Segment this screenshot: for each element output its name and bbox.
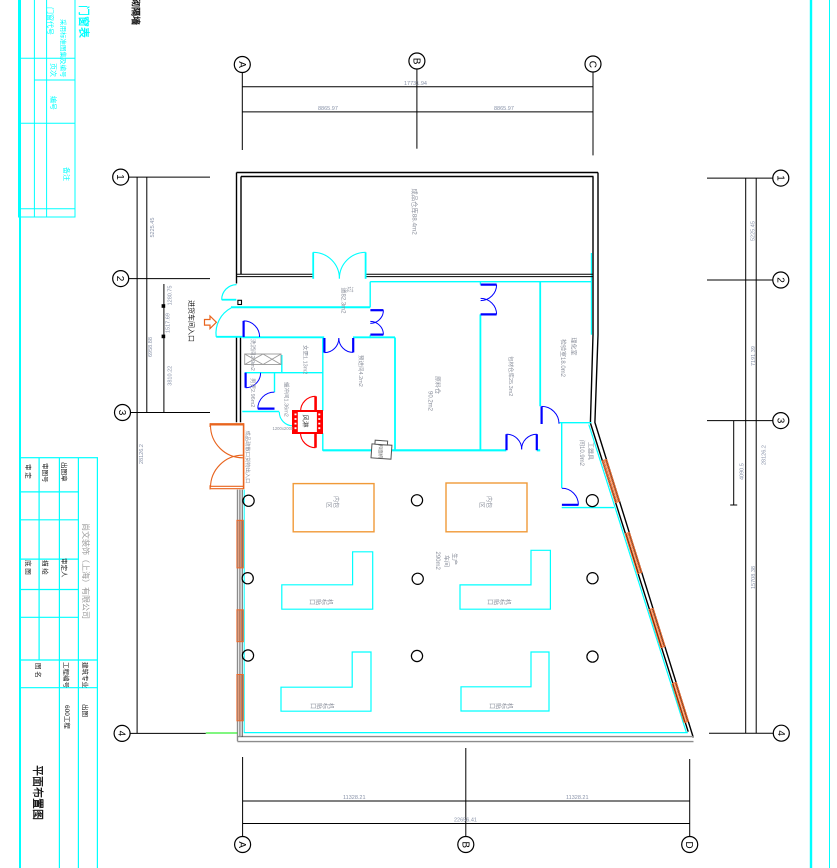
- svg-text:28126.2: 28126.2: [139, 444, 145, 464]
- svg-text:口贴标机: 口贴标机: [309, 703, 335, 709]
- svg-text:3: 3: [116, 410, 127, 416]
- svg-text:成品仓库88.4m2: 成品仓库88.4m2: [411, 189, 420, 236]
- svg-text:缓冲间1.36m2: 缓冲间1.36m2: [283, 382, 291, 417]
- svg-text:女更1.13m2: 女更1.13m2: [302, 345, 310, 374]
- svg-text:出图章: 出图章: [60, 462, 69, 482]
- svg-text:4090.5: 4090.5: [740, 463, 746, 480]
- svg-text:区: 区: [478, 502, 485, 508]
- svg-text:原料仓: 原料仓: [434, 376, 442, 394]
- svg-text:审图号: 审图号: [41, 463, 50, 483]
- svg-text:290m2: 290m2: [434, 552, 440, 571]
- svg-text:11328.21: 11328.21: [343, 795, 366, 801]
- svg-text:备注: 备注: [62, 167, 71, 181]
- svg-text:A: A: [236, 841, 247, 848]
- svg-text:理化室: 理化室: [570, 338, 578, 356]
- svg-text:2: 2: [774, 277, 785, 283]
- svg-text:门窗表: 门窗表: [78, 5, 92, 38]
- svg-text:建筑专业: 建筑专业: [81, 662, 90, 689]
- svg-text:A: A: [236, 61, 247, 68]
- svg-text:90.2m2: 90.2m2: [427, 391, 433, 412]
- svg-text:2: 2: [114, 276, 125, 282]
- svg-text:道82.3m2: 道82.3m2: [340, 288, 348, 315]
- svg-text:洗消间2.9m2: 洗消间2.9m2: [249, 339, 257, 371]
- svg-text:11328.21: 11328.21: [566, 795, 589, 801]
- svg-text:28126.2: 28126.2: [762, 445, 768, 465]
- svg-text:底 图: 底 图: [24, 560, 33, 575]
- svg-text:口贴标机: 口贴标机: [488, 703, 514, 709]
- svg-text:编号: 编号: [49, 96, 58, 110]
- svg-text:1517.69: 1517.69: [166, 313, 172, 333]
- svg-text:预进间4.2m2: 预进间4.2m2: [357, 355, 365, 387]
- svg-text:风淋: 风淋: [302, 415, 311, 429]
- svg-text:采用标准图集及编号: 采用标准图集及编号: [59, 19, 68, 78]
- svg-text:审 定: 审 定: [24, 464, 33, 479]
- svg-text:6958.88: 6958.88: [148, 337, 154, 357]
- svg-text:C: C: [587, 61, 598, 68]
- svg-text:4: 4: [775, 730, 786, 736]
- svg-text:工器具: 工器具: [587, 442, 594, 460]
- svg-text:5225.45: 5225.45: [751, 221, 757, 241]
- svg-text:描 绘: 描 绘: [41, 560, 50, 575]
- svg-text:600工程: 600工程: [63, 705, 72, 729]
- svg-text:22656.41: 22656.41: [454, 818, 477, 824]
- svg-text:1200x2000: 1200x2000: [273, 426, 294, 431]
- svg-text:出图: 出图: [81, 704, 90, 717]
- svg-text:B: B: [410, 58, 421, 65]
- svg-text:1: 1: [114, 174, 125, 180]
- svg-text:口贴标机: 口贴标机: [308, 599, 334, 605]
- svg-text:门窗代号: 门窗代号: [46, 7, 55, 35]
- svg-text:B: B: [459, 841, 470, 848]
- svg-text:过: 过: [346, 287, 354, 293]
- svg-text:和面机: 和面机: [377, 445, 384, 459]
- svg-text:3810.22: 3810.22: [168, 366, 174, 386]
- svg-text:车间: 车间: [443, 555, 451, 567]
- svg-text:17731.94: 17731.94: [404, 81, 427, 87]
- svg-text:审定人: 审定人: [60, 558, 69, 578]
- svg-text:检验室18.0m2: 检验室18.0m2: [559, 339, 567, 378]
- svg-text:生产: 生产: [451, 553, 459, 565]
- svg-text:D: D: [683, 841, 694, 848]
- svg-text:间10.9m2: 间10.9m2: [578, 440, 586, 467]
- svg-text:砖砌隔墙: 砖砌隔墙: [131, 0, 142, 25]
- svg-text:8865.97: 8865.97: [494, 106, 514, 112]
- svg-text:页次: 页次: [49, 63, 58, 77]
- svg-text:1280.75: 1280.75: [168, 286, 174, 306]
- svg-text:尚文装饰（上海）有限公司: 尚文装饰（上海）有限公司: [81, 523, 91, 619]
- svg-text:图 名: 图 名: [34, 663, 43, 678]
- svg-text:平面布置图: 平面布置图: [32, 765, 45, 820]
- svg-text:1: 1: [774, 175, 785, 181]
- svg-text:区: 区: [325, 502, 332, 508]
- svg-text:3: 3: [774, 418, 785, 424]
- svg-text:5225.45: 5225.45: [150, 218, 156, 238]
- svg-text:内包: 内包: [485, 496, 493, 508]
- svg-text:男更2.96m2: 男更2.96m2: [249, 378, 256, 407]
- svg-text:进货车间入口: 进货车间入口: [187, 300, 196, 342]
- svg-text:内包: 内包: [332, 496, 340, 508]
- svg-text:8865.97: 8865.97: [318, 106, 338, 112]
- svg-text:口贴标机: 口贴标机: [486, 599, 512, 605]
- svg-text:4: 4: [116, 731, 127, 737]
- svg-text:成品疏散口货物出入口: 成品疏散口货物出入口: [244, 431, 252, 484]
- svg-text:包材仓库25.3m2: 包材仓库25.3m2: [507, 356, 515, 396]
- svg-text:7191.39: 7191.39: [751, 346, 757, 366]
- svg-text:15708.38: 15708.38: [751, 566, 757, 589]
- svg-text:工程编号: 工程编号: [62, 662, 71, 689]
